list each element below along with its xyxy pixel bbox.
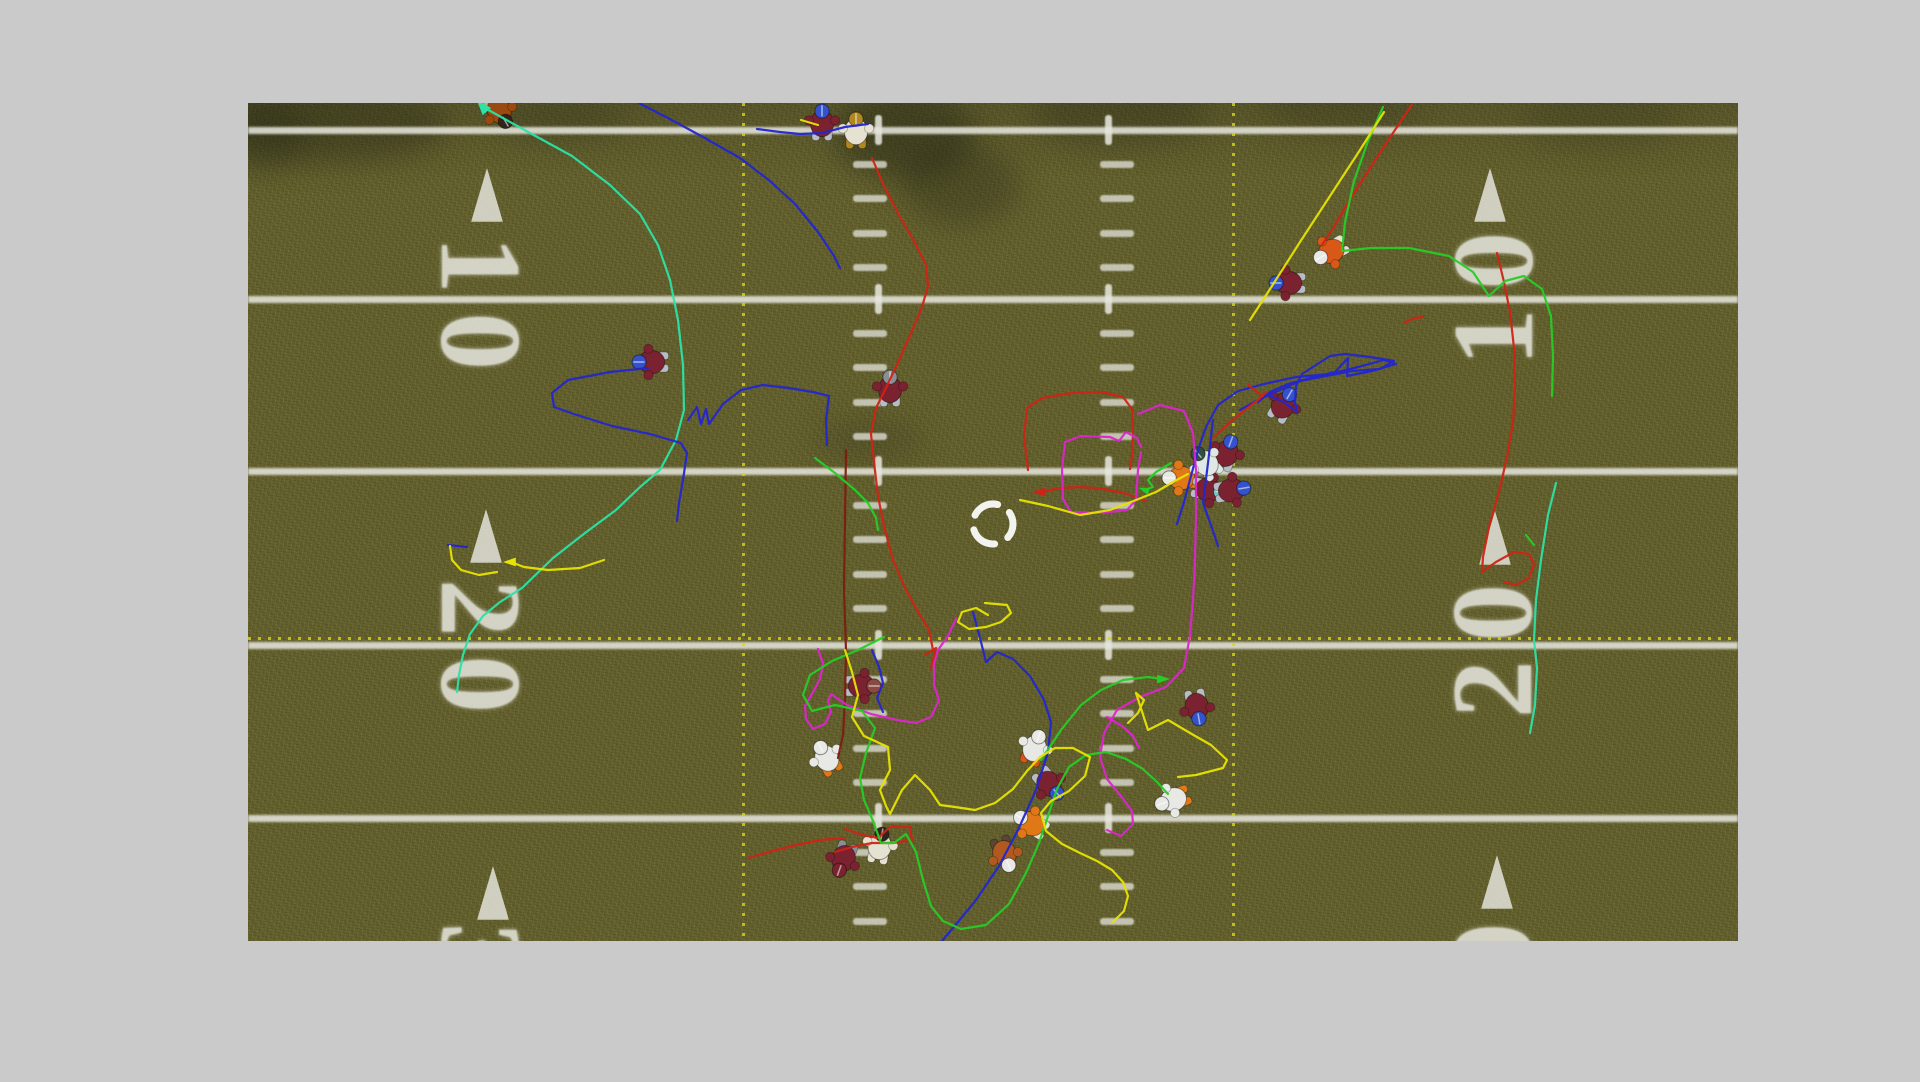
grass-noise	[248, 103, 1738, 941]
game-screenshot-canvas: 102030102030	[0, 0, 1920, 1082]
tracking-overlay	[0, 0, 1920, 1082]
